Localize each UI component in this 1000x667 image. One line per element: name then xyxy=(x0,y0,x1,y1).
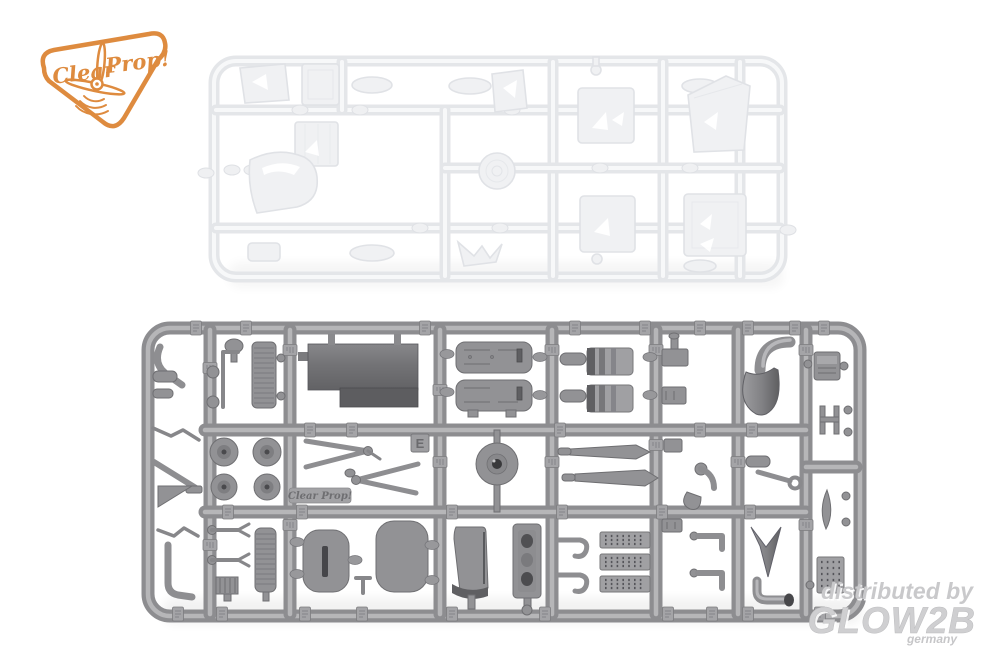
tee-part xyxy=(356,578,370,593)
rear-pane-part xyxy=(580,196,635,252)
curved-cowl-part xyxy=(452,527,488,609)
distributor-watermark: distributed by distributed by GLOW2B GLO… xyxy=(808,578,978,647)
cockpit-tray-parts xyxy=(440,342,547,417)
landing-light-part xyxy=(479,153,515,189)
product-photo: Clear Prop! E xyxy=(0,0,1000,667)
intake-scoop-part xyxy=(743,340,790,415)
small-clear-knob xyxy=(591,57,601,75)
flag-bracket-part xyxy=(158,486,198,597)
elbow-pipe-part xyxy=(757,581,794,607)
ribbed-block-part xyxy=(216,577,238,601)
corrugated-drum-part xyxy=(255,528,276,601)
airfoil-blade-part xyxy=(822,490,850,529)
sprue-emboss-plate: Clear Prop! xyxy=(288,488,352,503)
ladder-frame-part xyxy=(820,406,852,436)
sprue-gate-letter: E xyxy=(416,436,425,451)
landing-gear-strut-parts xyxy=(306,441,418,493)
fuselage-panel-part xyxy=(298,334,418,407)
watermark-line3: germany xyxy=(906,632,958,646)
bent-wire-part xyxy=(153,428,199,440)
gray-parts-sprue: Clear Prop! E xyxy=(148,321,862,624)
clamp-part xyxy=(662,519,682,532)
hub-disc-part xyxy=(476,430,518,512)
wrench-parts xyxy=(746,456,801,489)
tailwheel-fork-parts xyxy=(558,445,658,486)
windshield-part xyxy=(240,64,289,103)
model-kit-sprues-photo: Clear Prop! E xyxy=(0,0,1000,667)
sprue-gate-letter-tab: E xyxy=(411,434,429,452)
canopy-hood-part xyxy=(578,88,634,143)
canopy-quarter-part xyxy=(492,70,527,112)
framed-pane-part xyxy=(684,194,746,256)
small-cylinder-parts xyxy=(153,371,177,398)
angle-bracket-parts xyxy=(690,532,722,588)
main-wheel-parts xyxy=(210,438,281,500)
logo-word2: Prop! xyxy=(103,45,171,78)
exhaust-stack-parts xyxy=(560,348,633,412)
clear-parts-sprue xyxy=(198,57,796,288)
sprue-emboss-text: Clear Prop! xyxy=(288,491,352,502)
radiator-drum-part xyxy=(207,342,285,408)
small-pipe-parts xyxy=(664,439,714,510)
clear-prop-logo: Clear Prop! xyxy=(43,33,172,126)
radiator-grille-parts xyxy=(600,532,650,592)
funnel-part xyxy=(751,527,781,577)
hook-parts xyxy=(558,540,587,591)
seat-back-slot-part xyxy=(290,530,349,592)
bubble-canopy-part xyxy=(249,152,317,213)
window-pane-part xyxy=(302,64,339,105)
